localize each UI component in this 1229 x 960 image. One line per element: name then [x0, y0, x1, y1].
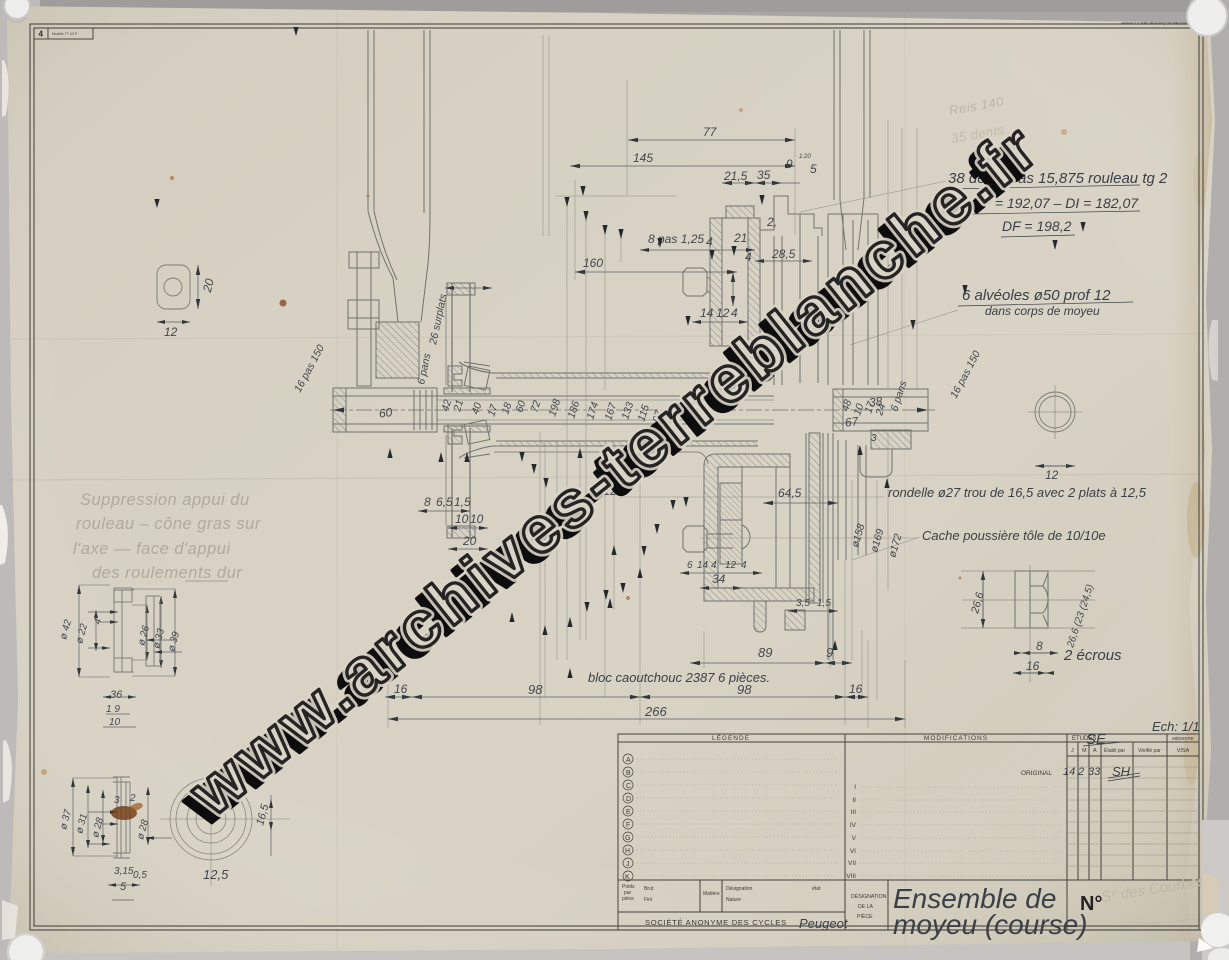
- svg-text:E: E: [626, 809, 631, 816]
- svg-text:bloc caoutchouc 2387 6 pièces: bloc caoutchouc 2387 6 pièces.: [588, 670, 770, 685]
- svg-text:14: 14: [697, 560, 709, 571]
- svg-text:3: 3: [114, 795, 120, 806]
- svg-text:Fini: Fini: [644, 897, 652, 903]
- svg-text:HÉRAULT IMP. BESANÇON PEUGEOT: HÉRAULT IMP. BESANÇON PEUGEOT: [1121, 21, 1193, 26]
- svg-text:6 alvéoles ø50 prof 12: 6 alvéoles ø50 prof 12: [962, 287, 1111, 304]
- svg-text:36: 36: [110, 689, 123, 701]
- svg-text:1,5: 1,5: [454, 495, 471, 509]
- svg-text:VI: VI: [850, 848, 856, 855]
- svg-text:VISA: VISA: [1177, 748, 1190, 754]
- svg-text:12: 12: [1045, 468, 1059, 482]
- svg-text:266: 266: [644, 704, 667, 719]
- svg-text:5: 5: [810, 162, 817, 176]
- svg-text:33: 33: [1088, 766, 1101, 778]
- svg-text:VIII: VIII: [846, 873, 856, 880]
- svg-text:Vérifié par: Vérifié par: [1138, 748, 1161, 754]
- svg-text:Modèle TT 43 P: Modèle TT 43 P: [52, 32, 78, 36]
- svg-text:Nature: Nature: [726, 897, 741, 903]
- svg-text:D: D: [626, 796, 631, 803]
- svg-text:2: 2: [129, 793, 136, 804]
- svg-text:12: 12: [164, 325, 178, 339]
- svg-text:145: 145: [633, 151, 653, 165]
- svg-text:MÉMOIRE: MÉMOIRE: [1172, 735, 1194, 741]
- svg-text:10: 10: [109, 717, 121, 728]
- svg-text:1:20: 1:20: [799, 154, 811, 160]
- svg-text:10: 10: [470, 512, 484, 526]
- svg-text:4: 4: [745, 250, 752, 264]
- svg-text:9: 9: [826, 645, 833, 660]
- svg-text:16: 16: [1026, 659, 1040, 673]
- svg-text:DE LA: DE LA: [858, 904, 874, 910]
- svg-text:l'axe — face d'appui: l'axe — face d'appui: [73, 540, 231, 558]
- svg-text:8: 8: [1036, 639, 1043, 653]
- svg-text:4: 4: [706, 235, 713, 249]
- svg-text:2: 2: [1077, 766, 1084, 778]
- svg-text:2 écrous: 2 écrous: [1063, 647, 1122, 664]
- svg-text:4: 4: [731, 306, 738, 320]
- svg-text:moyeu (course): moyeu (course): [893, 909, 1088, 940]
- svg-text:160: 160: [583, 256, 603, 270]
- svg-text:60: 60: [378, 405, 393, 421]
- svg-text:4: 4: [711, 560, 717, 571]
- svg-text:77: 77: [703, 125, 718, 139]
- svg-text:4: 4: [741, 560, 747, 571]
- svg-text:N°: N°: [1080, 893, 1102, 915]
- svg-text:6: 6: [687, 560, 693, 571]
- svg-text:3: 3: [871, 433, 877, 444]
- svg-text:H: H: [625, 848, 630, 855]
- svg-text:Peugeot: Peugeot: [799, 916, 849, 931]
- svg-text:Suppression appui du: Suppression appui du: [80, 491, 250, 509]
- svg-text:Ech: 1/1: Ech: 1/1: [1152, 719, 1200, 734]
- svg-text:1 9: 1 9: [106, 704, 120, 715]
- svg-text:DF = 198,2: DF = 198,2: [1002, 218, 1072, 234]
- svg-text:28,5: 28,5: [771, 247, 796, 261]
- svg-text:M: M: [1082, 748, 1087, 754]
- svg-text:12: 12: [716, 306, 730, 320]
- svg-text:B: B: [626, 770, 631, 777]
- svg-text:14: 14: [700, 306, 714, 320]
- svg-text:LÉGENDE: LÉGENDE: [712, 733, 750, 742]
- svg-text:89: 89: [758, 645, 772, 660]
- svg-text:ORIGINAL: ORIGINAL: [1021, 770, 1052, 777]
- svg-text:PIÈCE: PIÈCE: [857, 913, 873, 920]
- svg-text:Désignation: Désignation: [726, 886, 753, 892]
- svg-text:I: I: [854, 784, 856, 791]
- svg-text:F: F: [626, 822, 630, 829]
- svg-text:J: J: [626, 861, 630, 868]
- svg-text:V: V: [852, 835, 857, 842]
- svg-text:3,5: 3,5: [796, 598, 810, 609]
- svg-text:état: état: [812, 886, 821, 892]
- svg-text:8 pas 1,25: 8 pas 1,25: [648, 232, 704, 246]
- svg-text:14: 14: [1063, 766, 1075, 778]
- svg-text:3,15: 3,15: [114, 866, 134, 877]
- svg-text:98: 98: [528, 682, 543, 697]
- svg-text:35: 35: [757, 168, 771, 182]
- svg-text:A: A: [1093, 748, 1097, 754]
- svg-text:MODIFICATIONS: MODIFICATIONS: [924, 735, 988, 742]
- svg-text:IV: IV: [850, 822, 857, 829]
- svg-text:des roulements dur: des roulements dur: [92, 564, 243, 582]
- svg-text:II: II: [852, 797, 856, 804]
- svg-text:III: III: [851, 809, 857, 816]
- svg-text:Matière: Matière: [703, 891, 720, 897]
- svg-text:1,5: 1,5: [817, 598, 831, 609]
- svg-text:SOCIÉTÉ ANONYME DES CYCLES: SOCIÉTÉ ANONYME DES CYCLES: [645, 918, 787, 927]
- svg-text:J: J: [1071, 748, 1074, 754]
- svg-text:Brut: Brut: [644, 886, 654, 892]
- svg-text:5: 5: [120, 881, 127, 893]
- svg-text:4: 4: [39, 30, 44, 39]
- svg-text:A: A: [626, 757, 631, 764]
- svg-text:K: K: [625, 874, 630, 881]
- svg-text:2,: 2,: [766, 215, 777, 229]
- svg-text:9: 9: [786, 157, 793, 171]
- svg-text:21: 21: [733, 231, 747, 245]
- svg-text:12: 12: [725, 560, 737, 571]
- svg-text:16: 16: [849, 682, 863, 696]
- svg-text:Établi par: Établi par: [1104, 747, 1125, 754]
- svg-text:G: G: [625, 835, 630, 842]
- svg-text:12,5: 12,5: [203, 867, 229, 882]
- svg-text:rouleau – cône gras sur: rouleau – cône gras sur: [76, 515, 262, 533]
- svg-text:C: C: [626, 783, 631, 790]
- svg-text:0,5: 0,5: [133, 870, 147, 881]
- svg-text:DÉSIGNATION: DÉSIGNATION: [851, 893, 887, 900]
- svg-text:10: 10: [455, 512, 469, 526]
- svg-text:Cache poussière tôle de 10/10e: Cache poussière tôle de 10/10e: [922, 528, 1106, 543]
- svg-text:8: 8: [424, 495, 431, 509]
- svg-text:21,5: 21,5: [723, 169, 748, 183]
- svg-text:dans corps de moyeu: dans corps de moyeu: [985, 304, 1100, 318]
- svg-text:VII: VII: [848, 860, 856, 867]
- svg-text:64,5: 64,5: [778, 486, 802, 500]
- svg-text:6,5: 6,5: [436, 495, 453, 509]
- svg-text:pièce: pièce: [622, 896, 634, 902]
- svg-text:34: 34: [712, 572, 726, 586]
- svg-text:rondelle ø27 trou de 16,5 avec: rondelle ø27 trou de 16,5 avec 2 plats à…: [888, 485, 1147, 500]
